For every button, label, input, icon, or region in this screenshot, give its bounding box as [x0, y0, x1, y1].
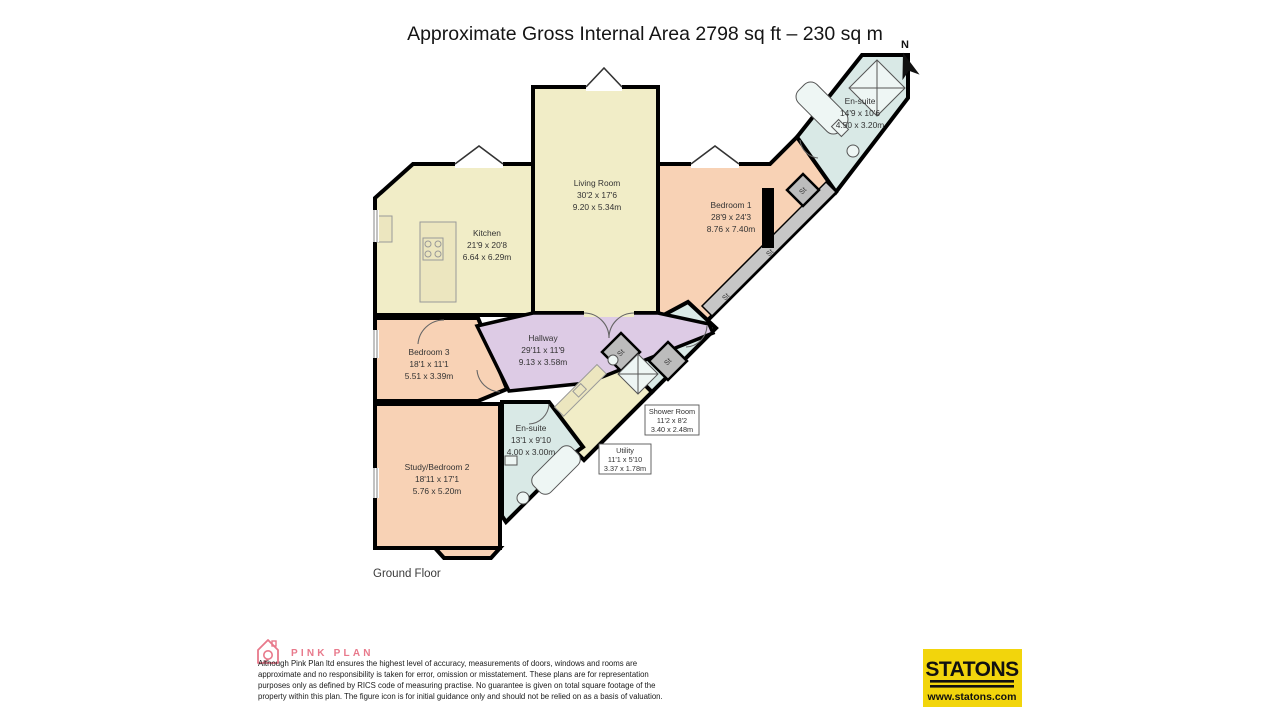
svg-text:9.13 x 3.58m: 9.13 x 3.58m — [519, 357, 567, 367]
svg-text:28'9 x 24'3: 28'9 x 24'3 — [711, 212, 751, 222]
pink-plan-wordmark: PINK PLAN — [291, 648, 374, 659]
svg-text:21'9 x 20'8: 21'9 x 20'8 — [467, 240, 507, 250]
svg-text:30'2 x 17'6: 30'2 x 17'6 — [577, 190, 617, 200]
statons-wordmark: STATONS — [925, 658, 1019, 681]
svg-text:18'1 x 11'1: 18'1 x 11'1 — [409, 359, 449, 369]
toilet-icon-shower-room — [608, 355, 618, 365]
svg-text:11'2 x 8'2: 11'2 x 8'2 — [657, 416, 687, 425]
svg-text:3.40 x 2.48m: 3.40 x 2.48m — [651, 425, 693, 434]
label-living-room: Living Room 30'2 x 17'6 9.20 x 5.34m — [573, 178, 621, 212]
fireplace — [762, 188, 774, 248]
label-bedroom-1: Bedroom 1 28'9 x 24'3 8.76 x 7.40m — [707, 200, 755, 234]
svg-text:Shower Room: Shower Room — [649, 407, 695, 416]
toilet-icon-ensuite-bottom — [517, 492, 529, 504]
floorplan-canvas: Approximate Gross Internal Area 2798 sq … — [0, 0, 1280, 720]
floorplan-page: Approximate Gross Internal Area 2798 sq … — [0, 0, 1280, 720]
svg-text:En-suite: En-suite — [516, 423, 547, 433]
kitchen-sink-icon — [377, 216, 392, 242]
window-bedroom1-top — [691, 146, 739, 168]
floor-label: Ground Floor — [373, 568, 441, 580]
svg-text:Utility: Utility — [616, 446, 634, 455]
statons-logo: STATONS www.statons.com — [923, 649, 1022, 707]
window-kitchen-top — [455, 146, 503, 168]
svg-text:5.51 x 3.39m: 5.51 x 3.39m — [405, 371, 453, 381]
svg-text:Living Room: Living Room — [574, 178, 621, 188]
svg-text:9.20 x 5.34m: 9.20 x 5.34m — [573, 202, 621, 212]
svg-text:Bedroom 3: Bedroom 3 — [409, 347, 450, 357]
svg-text:18'11 x 17'1: 18'11 x 17'1 — [415, 474, 459, 484]
svg-text:13'1 x 9'10: 13'1 x 9'10 — [511, 435, 551, 445]
toilet-icon-ensuite-top — [847, 145, 859, 157]
svg-text:N: N — [901, 39, 909, 51]
svg-text:Although Pink Plan ltd ensures: Although Pink Plan ltd ensures the highe… — [258, 659, 637, 668]
window-left-kitchen — [371, 210, 379, 242]
kitchen-island — [420, 222, 456, 302]
window-left-bedroom3 — [371, 330, 379, 358]
svg-text:4.50 x 3.20m: 4.50 x 3.20m — [836, 120, 884, 130]
svg-text:approximate and no responsibil: approximate and no responsibility is tak… — [258, 670, 649, 679]
svg-text:purposes only as defined by RI: purposes only as defined by RICS code of… — [258, 681, 655, 690]
svg-text:5.76 x 5.20m: 5.76 x 5.20m — [413, 486, 461, 496]
svg-text:6.64 x 6.29m: 6.64 x 6.29m — [463, 252, 511, 262]
room-living-room — [533, 87, 658, 313]
svg-text:4.00 x 3.00m: 4.00 x 3.00m — [507, 447, 555, 457]
sink-icon-ensuite-bottom — [505, 456, 517, 465]
label-bedroom-3: Bedroom 3 18'1 x 11'1 5.51 x 3.39m — [405, 347, 453, 381]
svg-text:Hallway: Hallway — [528, 333, 558, 343]
svg-text:11'1 x 5'10: 11'1 x 5'10 — [608, 455, 642, 464]
svg-text:8.76 x 7.40m: 8.76 x 7.40m — [707, 224, 755, 234]
study-bay-window — [435, 548, 500, 558]
window-left-study — [371, 468, 379, 498]
window-living-top — [586, 68, 622, 91]
svg-text:property within this plan. The: property within this plan. The figure ic… — [258, 692, 663, 701]
svg-text:29'11 x 11'9: 29'11 x 11'9 — [521, 345, 565, 355]
label-shower-room: Shower Room 11'2 x 8'2 3.40 x 2.48m — [645, 405, 699, 435]
svg-text:Study/Bedroom 2: Study/Bedroom 2 — [405, 462, 470, 472]
label-utility: Utility 11'1 x 5'10 3.37 x 1.78m — [599, 444, 651, 474]
svg-text:Bedroom 1: Bedroom 1 — [711, 200, 752, 210]
svg-text:14'9 x 10'6: 14'9 x 10'6 — [840, 108, 880, 118]
disclaimer-text: Although Pink Plan ltd ensures the highe… — [258, 659, 663, 701]
page-title: Approximate Gross Internal Area 2798 sq … — [407, 23, 883, 45]
statons-website: www.statons.com — [927, 691, 1017, 703]
svg-text:En-suite: En-suite — [845, 96, 876, 106]
svg-text:3.37 x 1.78m: 3.37 x 1.78m — [604, 464, 646, 473]
svg-text:Kitchen: Kitchen — [473, 228, 501, 238]
